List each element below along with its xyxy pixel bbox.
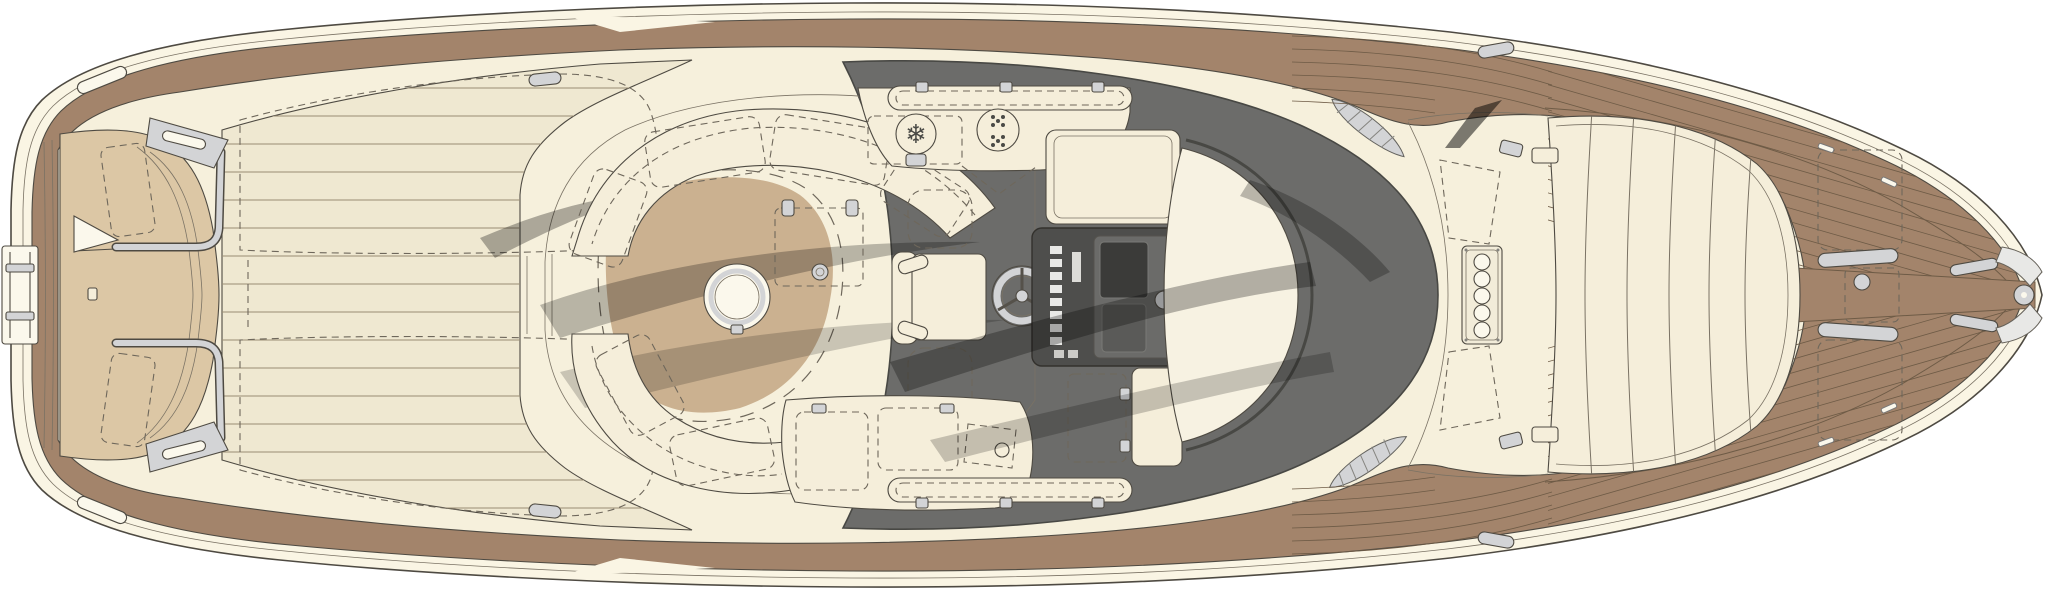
burner-unit — [977, 109, 1019, 151]
porthole — [1474, 305, 1490, 321]
chart-locker — [1046, 130, 1180, 224]
porthole — [1474, 322, 1490, 338]
porthole — [1474, 288, 1490, 304]
snowflake-icon: ❄ — [905, 120, 927, 150]
switch — [1068, 350, 1078, 358]
sunpad-latch — [88, 288, 97, 300]
icemaker-latch — [906, 154, 926, 166]
yacht-deck-plan: Luxury motor yacht deck plan — overhead … — [0, 0, 2048, 590]
switch — [1054, 350, 1064, 358]
ladder-rung — [6, 312, 34, 320]
radio-unit — [1072, 252, 1081, 282]
table-hinge — [782, 200, 794, 216]
deck-plan-drawing: Luxury motor yacht deck plan — overhead … — [0, 0, 2048, 590]
ladder-rung — [6, 264, 34, 272]
sunpad-tab — [1532, 148, 1558, 163]
porthole — [1474, 271, 1490, 287]
porthole — [1474, 254, 1490, 270]
sunpad-tab — [1532, 427, 1558, 442]
table-latch — [812, 264, 828, 280]
swim-ladder — [2, 246, 38, 344]
porthole-strip — [1462, 246, 1502, 344]
table-hinge — [846, 200, 858, 216]
chartplotter-screen — [1100, 242, 1148, 298]
transom-sunpad — [60, 130, 219, 460]
